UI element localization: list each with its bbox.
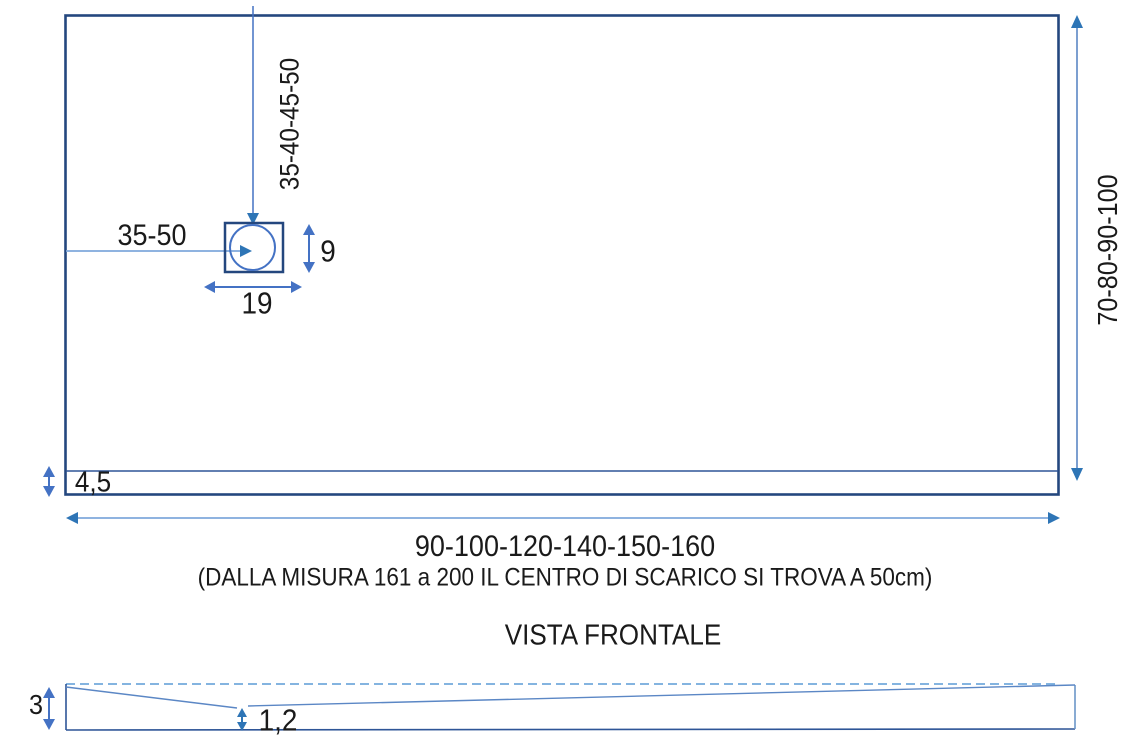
border-thickness-arrow <box>43 466 55 497</box>
front-surface-slope-right <box>248 685 1075 706</box>
depth-dimension-arrow <box>1071 15 1083 481</box>
drain-offset-horizontal-label: 35-50 <box>117 221 186 251</box>
drain-width-label: 19 <box>241 288 272 319</box>
drain-height-label: 9 <box>320 236 336 267</box>
top-view-plan <box>43 6 1083 524</box>
right-arrowhead-icon <box>240 245 252 257</box>
edge-height-label: 3 <box>29 691 43 719</box>
tray-outline <box>66 16 1059 495</box>
front-view-title: VISTA FRONTALE <box>505 622 722 651</box>
front-bottom-edge <box>66 729 1075 730</box>
shower-tray-technical-drawing: 35-40-45-50 35-50 9 19 70-80-90-100 4,5 … <box>0 0 1133 755</box>
min-thickness-label: 1,2 <box>259 705 298 736</box>
width-note-label: (DALLA MISURA 161 a 200 IL CENTRO DI SCA… <box>198 566 933 591</box>
drain-circle <box>230 225 275 270</box>
drain-height-arrow <box>303 224 315 273</box>
drain-offset-vertical-label: 35-40-45-50 <box>277 58 304 190</box>
min-thickness-arrow <box>237 708 247 731</box>
width-range-label: 90-100-120-140-150-160 <box>415 532 715 562</box>
border-thickness-label: 4,5 <box>75 469 111 498</box>
width-dimension-arrow <box>66 512 1060 524</box>
front-view-profile <box>43 684 1075 731</box>
edge-height-arrow <box>43 687 55 730</box>
front-surface-slope-left <box>66 687 237 708</box>
depth-range-label: 70-80-90-100 <box>1094 174 1122 325</box>
